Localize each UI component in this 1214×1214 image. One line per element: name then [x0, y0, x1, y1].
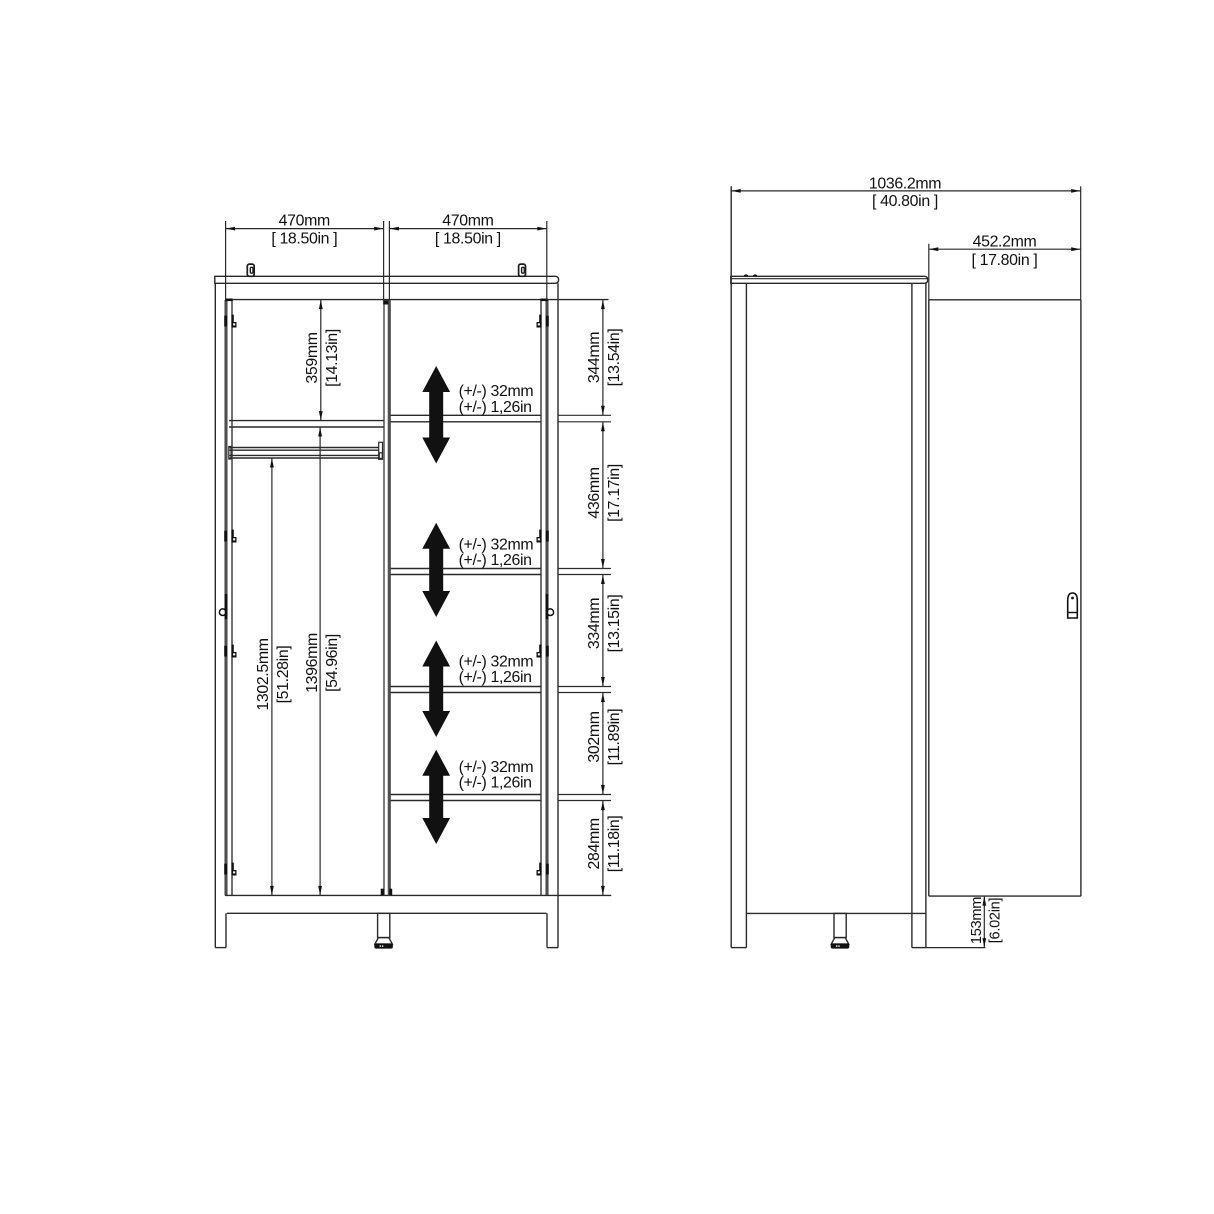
svg-text:[14.13in]: [14.13in]	[324, 329, 341, 387]
svg-text:[54.96in]: [54.96in]	[324, 634, 341, 692]
svg-text:[6.02in]: [6.02in]	[987, 898, 1003, 944]
svg-text:[ 18.50in ]: [ 18.50in ]	[435, 230, 501, 247]
svg-text:(+/-) 32mm: (+/-) 32mm	[459, 537, 534, 554]
svg-text:(+/-) 1,26in: (+/-) 1,26in	[459, 775, 532, 792]
svg-text:[ 17.80in ]: [ 17.80in ]	[972, 252, 1038, 269]
svg-text:(+/-) 32mm: (+/-) 32mm	[459, 383, 534, 400]
svg-text:[ 40.80in ]: [ 40.80in ]	[872, 193, 938, 210]
svg-text:[13.54in]: [13.54in]	[606, 329, 623, 387]
svg-text:1036.2mm: 1036.2mm	[869, 175, 941, 192]
svg-text:(+/-) 1,26in: (+/-) 1,26in	[459, 399, 532, 416]
svg-text:1302.5mm: 1302.5mm	[255, 638, 272, 710]
svg-text:470mm: 470mm	[442, 213, 493, 230]
svg-text:(+/-) 32mm: (+/-) 32mm	[459, 759, 534, 776]
svg-text:(+/-) 32mm: (+/-) 32mm	[459, 654, 534, 671]
svg-text:[13.15in]: [13.15in]	[606, 595, 623, 653]
svg-text:452.2mm: 452.2mm	[973, 233, 1037, 250]
svg-text:[51.28in]: [51.28in]	[275, 646, 292, 704]
svg-text:344mm: 344mm	[586, 332, 603, 383]
svg-text:436mm: 436mm	[586, 467, 603, 518]
svg-text:359mm: 359mm	[304, 332, 321, 383]
svg-text:284mm: 284mm	[586, 818, 603, 869]
svg-text:(+/-) 1,26in: (+/-) 1,26in	[459, 552, 532, 569]
svg-text:(+/-) 1,26in: (+/-) 1,26in	[459, 669, 532, 686]
svg-text:[17.17in]: [17.17in]	[606, 464, 623, 522]
svg-text:334mm: 334mm	[586, 598, 603, 649]
svg-text:[ 18.50in ]: [ 18.50in ]	[271, 230, 337, 247]
svg-text:[11.18in]: [11.18in]	[606, 816, 623, 873]
svg-text:153mm: 153mm	[969, 897, 985, 944]
svg-text:1396mm: 1396mm	[304, 633, 321, 693]
svg-text:302mm: 302mm	[586, 711, 603, 762]
svg-text:470mm: 470mm	[279, 213, 330, 230]
svg-text:[11.89in]: [11.89in]	[606, 709, 623, 766]
